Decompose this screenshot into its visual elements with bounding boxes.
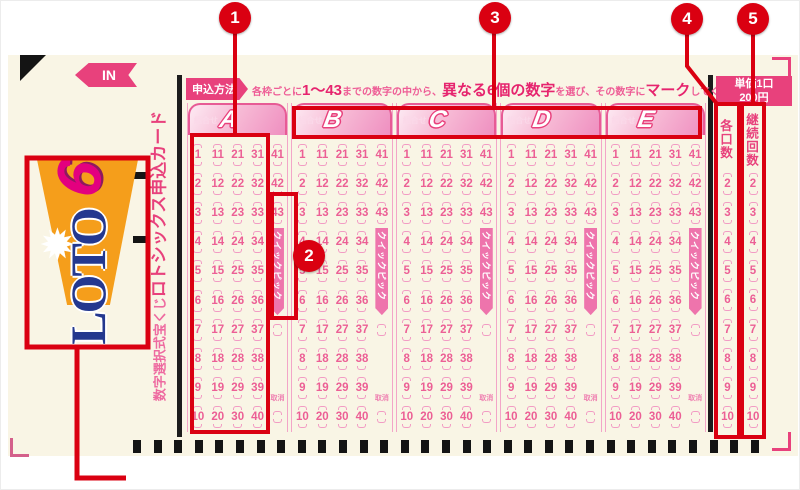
number-cell[interactable]: 6 bbox=[188, 286, 208, 315]
number-cell[interactable]: 37 bbox=[561, 315, 581, 344]
number-cell[interactable]: 18 bbox=[521, 344, 541, 373]
timing-mark bbox=[236, 440, 244, 453]
block-letter: D bbox=[531, 106, 553, 134]
number-cell[interactable]: 11 bbox=[626, 140, 646, 169]
number-cell[interactable]: 30 bbox=[541, 403, 561, 432]
instruction-segment: を選び、その数字に bbox=[555, 87, 645, 98]
number-cell[interactable]: 26 bbox=[228, 286, 248, 315]
number-cell[interactable]: 14 bbox=[521, 228, 541, 257]
number-cell[interactable]: 11 bbox=[417, 140, 437, 169]
number-column-last: 414243クイックピック取消 bbox=[476, 140, 496, 432]
number-cell[interactable]: 15 bbox=[626, 257, 646, 286]
number-cell[interactable]: 19 bbox=[626, 374, 646, 403]
loto6-application-card: IN ✹ 6 LOTO 数字選択式宝くじロトシックス申込カード 申込方法 各枠ご… bbox=[8, 55, 798, 456]
number-cell[interactable]: 34 bbox=[561, 228, 581, 257]
number-cell[interactable]: 37 bbox=[456, 315, 476, 344]
number-cell[interactable]: 40 bbox=[456, 403, 476, 432]
number-cell[interactable]: 2 bbox=[292, 169, 312, 198]
number-cell[interactable]: 3 bbox=[397, 198, 417, 227]
callout-circle-2: 2 bbox=[293, 240, 325, 272]
number-grid: 1234567891011121314151617181920212223242… bbox=[606, 140, 705, 432]
instruction-text: 各枠ごとに1〜43までの数字の中から、異なる6個の数字を選び、その数字にマークし… bbox=[252, 79, 760, 100]
quickpick-mark-cell[interactable] bbox=[685, 315, 705, 344]
number-cell[interactable]: 39 bbox=[248, 374, 268, 403]
number-cell[interactable]: 41 bbox=[685, 140, 705, 169]
number-cell[interactable]: 24 bbox=[437, 228, 457, 257]
number-cell[interactable]: 22 bbox=[437, 169, 457, 198]
number-cell[interactable]: 25 bbox=[332, 257, 352, 286]
cancel-mark-cell[interactable] bbox=[685, 403, 705, 432]
number-cell[interactable]: 5 bbox=[716, 257, 739, 286]
timing-mark bbox=[257, 440, 265, 453]
number-cell[interactable]: 27 bbox=[541, 315, 561, 344]
cancel-mark-cell[interactable] bbox=[581, 403, 601, 432]
number-cell[interactable]: 4 bbox=[397, 228, 417, 257]
number-grid: 1234567891011121314151617181920212223242… bbox=[188, 140, 287, 432]
number-cell[interactable]: 13 bbox=[208, 198, 228, 227]
number-cell[interactable]: 20 bbox=[417, 403, 437, 432]
number-cell[interactable]: 5 bbox=[606, 257, 626, 286]
number-cell[interactable]: 1 bbox=[188, 140, 208, 169]
number-cell[interactable]: 33 bbox=[665, 198, 685, 227]
number-cell[interactable]: 20 bbox=[521, 403, 541, 432]
number-cell[interactable]: 11 bbox=[312, 140, 332, 169]
number-cell[interactable]: 33 bbox=[352, 198, 372, 227]
number-cell[interactable]: 24 bbox=[645, 228, 665, 257]
number-cell[interactable]: 16 bbox=[626, 286, 646, 315]
quickpick-mark-cell[interactable] bbox=[476, 315, 496, 344]
timing-mark bbox=[668, 440, 676, 453]
number-cell[interactable]: 28 bbox=[645, 344, 665, 373]
number-cell[interactable]: 14 bbox=[417, 228, 437, 257]
quickpick-strip[interactable]: クイックピック bbox=[689, 228, 702, 316]
number-cell[interactable]: 6 bbox=[292, 286, 312, 315]
number-cell[interactable]: 8 bbox=[501, 344, 521, 373]
number-column: 12345678910 bbox=[397, 140, 417, 432]
number-cell[interactable]: 24 bbox=[228, 228, 248, 257]
number-cell[interactable]: 18 bbox=[626, 344, 646, 373]
units-header: 各口数 bbox=[716, 110, 735, 169]
number-cell[interactable]: 37 bbox=[665, 315, 685, 344]
cancel-mark-cell[interactable] bbox=[268, 403, 288, 432]
number-cell[interactable]: 25 bbox=[437, 257, 457, 286]
number-cell[interactable]: 13 bbox=[521, 198, 541, 227]
number-column: 12345678910 bbox=[501, 140, 521, 432]
number-cell[interactable]: 40 bbox=[561, 403, 581, 432]
number-cell[interactable]: 20 bbox=[208, 403, 228, 432]
number-cell[interactable]: 2 bbox=[742, 169, 764, 198]
number-cell[interactable]: 29 bbox=[437, 374, 457, 403]
combination-block-e: 組合せE123456789101112131415161718192021222… bbox=[605, 103, 706, 432]
number-cell[interactable]: 19 bbox=[417, 374, 437, 403]
number-cell[interactable]: 5 bbox=[397, 257, 417, 286]
number-cell[interactable]: 21 bbox=[437, 140, 457, 169]
number-cell[interactable]: 1 bbox=[501, 140, 521, 169]
number-cell[interactable]: 10 bbox=[501, 403, 521, 432]
timing-mark bbox=[751, 440, 759, 453]
number-cell[interactable]: 34 bbox=[248, 228, 268, 257]
number-cell[interactable]: 25 bbox=[228, 257, 248, 286]
number-cell[interactable]: 10 bbox=[292, 403, 312, 432]
number-cell[interactable]: 3 bbox=[188, 198, 208, 227]
quickpick-mark-cell[interactable] bbox=[581, 315, 601, 344]
number-cell[interactable]: 35 bbox=[561, 257, 581, 286]
number-cell[interactable]: 42 bbox=[581, 169, 601, 198]
number-cell[interactable]: 41 bbox=[268, 140, 288, 169]
number-cell[interactable]: 8 bbox=[397, 344, 417, 373]
number-cell[interactable]: 4 bbox=[188, 228, 208, 257]
loto6-logo: ✹ 6 LOTO bbox=[27, 158, 148, 347]
timing-mark bbox=[154, 440, 162, 453]
number-cell[interactable]: 17 bbox=[626, 315, 646, 344]
number-cell[interactable]: 8 bbox=[292, 344, 312, 373]
number-cell[interactable]: 24 bbox=[541, 228, 561, 257]
number-column: 12345678910 bbox=[292, 140, 312, 432]
right-black-bar bbox=[708, 75, 713, 432]
number-cell[interactable]: 10 bbox=[397, 403, 417, 432]
number-column: 21222324252627282930 bbox=[541, 140, 561, 432]
corner-mark-bottom-left bbox=[10, 438, 29, 457]
number-cell[interactable]: 35 bbox=[665, 257, 685, 286]
number-cell[interactable]: 22 bbox=[228, 169, 248, 198]
timing-mark bbox=[689, 440, 697, 453]
number-cell[interactable]: 32 bbox=[665, 169, 685, 198]
number-cell[interactable]: 43 bbox=[372, 198, 392, 227]
number-cell[interactable]: 42 bbox=[268, 169, 288, 198]
number-cell[interactable]: 43 bbox=[476, 198, 496, 227]
number-cell[interactable]: 31 bbox=[248, 140, 268, 169]
number-cell[interactable]: 25 bbox=[541, 257, 561, 286]
number-cell[interactable]: 28 bbox=[332, 344, 352, 373]
cancel-mark-cell[interactable] bbox=[476, 403, 496, 432]
number-cell[interactable]: 33 bbox=[248, 198, 268, 227]
number-cell[interactable]: 31 bbox=[665, 140, 685, 169]
number-cell[interactable]: 29 bbox=[541, 374, 561, 403]
number-cell[interactable]: 43 bbox=[268, 198, 288, 227]
number-cell[interactable]: 9 bbox=[188, 374, 208, 403]
number-cell[interactable]: 18 bbox=[417, 344, 437, 373]
number-cell[interactable]: 7 bbox=[188, 315, 208, 344]
number-cell[interactable]: 29 bbox=[228, 374, 248, 403]
number-cell[interactable]: 10 bbox=[716, 403, 739, 432]
number-cell[interactable]: 31 bbox=[561, 140, 581, 169]
number-cell[interactable]: 16 bbox=[521, 286, 541, 315]
number-cell[interactable]: 8 bbox=[742, 344, 764, 373]
number-cell[interactable]: 5 bbox=[742, 257, 764, 286]
number-cell[interactable]: 12 bbox=[417, 169, 437, 198]
callout-circle-4: 4 bbox=[671, 3, 703, 35]
number-cell[interactable]: 9 bbox=[716, 373, 739, 402]
number-cell[interactable]: 4 bbox=[606, 228, 626, 257]
number-cell[interactable]: 17 bbox=[521, 315, 541, 344]
number-cell[interactable]: 9 bbox=[397, 374, 417, 403]
number-cell[interactable]: 33 bbox=[456, 198, 476, 227]
block-header: 組合せA bbox=[188, 103, 287, 135]
block-header-label: 組合せ bbox=[612, 115, 636, 126]
number-cell[interactable]: 37 bbox=[352, 315, 372, 344]
number-cell[interactable]: 3 bbox=[606, 198, 626, 227]
number-cell[interactable]: 12 bbox=[521, 169, 541, 198]
block-letter: E bbox=[635, 106, 656, 134]
number-cell[interactable]: 23 bbox=[645, 198, 665, 227]
quickpick-strip[interactable]: クイックピック bbox=[584, 228, 597, 316]
number-cell[interactable]: 11 bbox=[521, 140, 541, 169]
number-cell[interactable]: 16 bbox=[208, 286, 228, 315]
number-cell[interactable]: 21 bbox=[332, 140, 352, 169]
number-cell[interactable]: 26 bbox=[437, 286, 457, 315]
number-cell[interactable]: 21 bbox=[645, 140, 665, 169]
number-cell[interactable]: 7 bbox=[716, 315, 739, 344]
number-cell[interactable]: 32 bbox=[561, 169, 581, 198]
number-cell[interactable]: 8 bbox=[188, 344, 208, 373]
number-cell[interactable]: 15 bbox=[521, 257, 541, 286]
number-cell[interactable]: 10 bbox=[742, 403, 764, 432]
number-cell[interactable]: 41 bbox=[372, 140, 392, 169]
instruction-segment: 1〜43 bbox=[302, 82, 342, 99]
number-cell[interactable]: 28 bbox=[541, 344, 561, 373]
corner-mark-bottom-right bbox=[772, 432, 791, 451]
number-cell[interactable]: 24 bbox=[332, 228, 352, 257]
quickpick-mark-cell[interactable] bbox=[268, 315, 288, 344]
number-cell[interactable]: 7 bbox=[501, 315, 521, 344]
number-cell[interactable]: 17 bbox=[417, 315, 437, 344]
number-cell[interactable]: 4 bbox=[742, 227, 764, 256]
number-cell[interactable]: 39 bbox=[665, 374, 685, 403]
instruction-segment: 異なる6個の数字 bbox=[442, 82, 555, 99]
number-cell[interactable]: 38 bbox=[248, 344, 268, 373]
number-cell[interactable]: 6 bbox=[606, 286, 626, 315]
number-cell[interactable]: 23 bbox=[541, 198, 561, 227]
number-cell[interactable]: 29 bbox=[645, 374, 665, 403]
number-cell[interactable]: 43 bbox=[685, 198, 705, 227]
number-column-last: 414243クイックピック取消 bbox=[581, 140, 601, 432]
number-cell[interactable]: 12 bbox=[626, 169, 646, 198]
number-cell[interactable]: 40 bbox=[352, 403, 372, 432]
number-cell[interactable]: 7 bbox=[397, 315, 417, 344]
number-cell[interactable]: 8 bbox=[606, 344, 626, 373]
timing-mark bbox=[339, 440, 347, 453]
number-cell[interactable]: 26 bbox=[332, 286, 352, 315]
number-cell[interactable]: 37 bbox=[248, 315, 268, 344]
number-cell[interactable]: 12 bbox=[312, 169, 332, 198]
number-cell[interactable]: 41 bbox=[581, 140, 601, 169]
number-cell[interactable]: 17 bbox=[312, 315, 332, 344]
number-cell[interactable]: 17 bbox=[208, 315, 228, 344]
timing-mark bbox=[627, 440, 635, 453]
number-cell[interactable]: 7 bbox=[742, 315, 764, 344]
timing-mark bbox=[298, 440, 306, 453]
number-cell[interactable]: 32 bbox=[456, 169, 476, 198]
number-cell[interactable]: 39 bbox=[456, 374, 476, 403]
number-cell[interactable]: 10 bbox=[606, 403, 626, 432]
number-cell[interactable]: 4 bbox=[501, 228, 521, 257]
number-cell[interactable]: 28 bbox=[437, 344, 457, 373]
number-cell[interactable]: 1 bbox=[292, 140, 312, 169]
number-cell[interactable]: 36 bbox=[665, 286, 685, 315]
number-cell[interactable]: 36 bbox=[248, 286, 268, 315]
number-cell[interactable]: 13 bbox=[312, 198, 332, 227]
number-cell[interactable]: 23 bbox=[332, 198, 352, 227]
cancel-mark-cell[interactable] bbox=[372, 403, 392, 432]
timing-mark bbox=[710, 440, 718, 453]
quickpick-strip[interactable]: クイックピック bbox=[375, 228, 388, 316]
number-cell[interactable]: 32 bbox=[248, 169, 268, 198]
number-cell[interactable]: 38 bbox=[352, 344, 372, 373]
number-cell[interactable]: 33 bbox=[561, 198, 581, 227]
block-header-label: 組合せ bbox=[507, 115, 531, 126]
number-cell[interactable]: 42 bbox=[685, 169, 705, 198]
number-cell[interactable]: 36 bbox=[561, 286, 581, 315]
block-header-label: 組合せ bbox=[403, 115, 427, 126]
number-cell[interactable]: 41 bbox=[476, 140, 496, 169]
quickpick-strip[interactable]: クイックピック bbox=[271, 228, 284, 316]
number-column: 31323334353637383940 bbox=[248, 140, 268, 432]
logo-text: LOTO bbox=[59, 209, 117, 345]
number-cell[interactable]: 30 bbox=[437, 403, 457, 432]
instruction-bar: 申込方法 各枠ごとに1〜43までの数字の中から、異なる6個の数字を選び、その数字… bbox=[186, 77, 708, 101]
number-cell[interactable]: 43 bbox=[581, 198, 601, 227]
quickpick-strip[interactable]: クイックピック bbox=[480, 228, 493, 316]
number-cell[interactable]: 22 bbox=[645, 169, 665, 198]
number-cell[interactable]: 5 bbox=[501, 257, 521, 286]
number-cell[interactable]: 27 bbox=[437, 315, 457, 344]
number-cell[interactable]: 27 bbox=[228, 315, 248, 344]
number-cell[interactable]: 23 bbox=[437, 198, 457, 227]
number-cell[interactable]: 15 bbox=[208, 257, 228, 286]
number-cell[interactable]: 5 bbox=[188, 257, 208, 286]
number-cell[interactable]: 23 bbox=[228, 198, 248, 227]
number-cell[interactable]: 6 bbox=[501, 286, 521, 315]
number-cell[interactable]: 10 bbox=[188, 403, 208, 432]
number-cell[interactable]: 38 bbox=[561, 344, 581, 373]
number-cell[interactable]: 1 bbox=[606, 140, 626, 169]
number-cell[interactable]: 6 bbox=[742, 286, 764, 315]
number-cell[interactable]: 34 bbox=[665, 228, 685, 257]
block-header-label: 組合せ bbox=[298, 115, 322, 126]
number-cell[interactable]: 34 bbox=[456, 228, 476, 257]
number-cell[interactable]: 9 bbox=[606, 374, 626, 403]
number-cell[interactable]: 2 bbox=[716, 169, 739, 198]
number-cell[interactable]: 20 bbox=[626, 403, 646, 432]
block-letter: A bbox=[218, 106, 240, 134]
number-cell[interactable]: 2 bbox=[397, 169, 417, 198]
number-cell[interactable]: 21 bbox=[228, 140, 248, 169]
number-cell[interactable]: 3 bbox=[292, 198, 312, 227]
card-side-title: 数字選択式宝くじロトシックス申込カード bbox=[134, 75, 180, 437]
number-cell[interactable]: 40 bbox=[248, 403, 268, 432]
number-cell[interactable]: 19 bbox=[312, 374, 332, 403]
number-column-last: 414243クイックピック取消 bbox=[372, 140, 392, 432]
number-cell[interactable]: 42 bbox=[372, 169, 392, 198]
number-cell[interactable]: 2 bbox=[188, 169, 208, 198]
number-cell[interactable]: 1 bbox=[397, 140, 417, 169]
timing-mark bbox=[318, 440, 326, 453]
number-cell[interactable]: 22 bbox=[541, 169, 561, 198]
block-header: 組合せB bbox=[292, 103, 391, 135]
number-cell[interactable]: 7 bbox=[292, 315, 312, 344]
combination-block-a: 組合せA123456789101112131415161718192021222… bbox=[187, 103, 288, 432]
number-cell[interactable]: 38 bbox=[665, 344, 685, 373]
page: IN ✹ 6 LOTO 数字選択式宝くじロトシックス申込カード 申込方法 各枠ご… bbox=[0, 0, 800, 490]
number-cell[interactable]: 26 bbox=[645, 286, 665, 315]
number-cell[interactable]: 3 bbox=[716, 198, 739, 227]
number-cell[interactable]: 13 bbox=[626, 198, 646, 227]
number-cell[interactable]: 28 bbox=[228, 344, 248, 373]
number-cell[interactable]: 13 bbox=[417, 198, 437, 227]
number-cell[interactable]: 6 bbox=[397, 286, 417, 315]
number-cell[interactable]: 3 bbox=[501, 198, 521, 227]
number-column: 21222324252627282930 bbox=[437, 140, 457, 432]
number-cell[interactable]: 38 bbox=[456, 344, 476, 373]
callout-circle-1: 1 bbox=[219, 2, 251, 34]
number-cell[interactable]: 26 bbox=[541, 286, 561, 315]
number-cell[interactable]: 21 bbox=[541, 140, 561, 169]
number-cell[interactable]: 2 bbox=[501, 169, 521, 198]
number-cell[interactable]: 14 bbox=[626, 228, 646, 257]
number-column: 21222324252627282930 bbox=[332, 140, 352, 432]
number-cell[interactable]: 25 bbox=[645, 257, 665, 286]
number-cell[interactable]: 19 bbox=[521, 374, 541, 403]
number-cell[interactable]: 39 bbox=[352, 374, 372, 403]
number-cell[interactable]: 36 bbox=[352, 286, 372, 315]
number-cell[interactable]: 9 bbox=[501, 374, 521, 403]
number-cell[interactable]: 2 bbox=[606, 169, 626, 198]
number-cell[interactable]: 31 bbox=[456, 140, 476, 169]
number-cell[interactable]: 39 bbox=[561, 374, 581, 403]
number-cell[interactable]: 35 bbox=[352, 257, 372, 286]
number-cell[interactable]: 30 bbox=[228, 403, 248, 432]
number-cell[interactable]: 9 bbox=[292, 374, 312, 403]
number-cell[interactable]: 4 bbox=[716, 227, 739, 256]
timing-mark bbox=[380, 440, 388, 453]
timing-mark bbox=[545, 440, 553, 453]
number-cell[interactable]: 22 bbox=[332, 169, 352, 198]
number-cell[interactable]: 15 bbox=[417, 257, 437, 286]
number-cell[interactable]: 12 bbox=[208, 169, 228, 198]
number-cell[interactable]: 3 bbox=[742, 198, 764, 227]
number-cell[interactable]: 32 bbox=[352, 169, 372, 198]
number-cell[interactable]: 11 bbox=[208, 140, 228, 169]
number-cell[interactable]: 27 bbox=[332, 315, 352, 344]
number-cell[interactable]: 20 bbox=[312, 403, 332, 432]
insert-direction-arrow-icon: IN bbox=[75, 63, 137, 87]
number-cell[interactable]: 36 bbox=[456, 286, 476, 315]
number-cell[interactable]: 18 bbox=[208, 344, 228, 373]
callout-circle-3: 3 bbox=[479, 2, 511, 34]
number-cell[interactable]: 40 bbox=[665, 403, 685, 432]
number-cell[interactable]: 34 bbox=[352, 228, 372, 257]
number-cell[interactable]: 8 bbox=[716, 344, 739, 373]
number-cell[interactable]: 19 bbox=[208, 374, 228, 403]
number-cell[interactable]: 35 bbox=[456, 257, 476, 286]
number-cell[interactable]: 7 bbox=[606, 315, 626, 344]
number-cell[interactable]: 18 bbox=[312, 344, 332, 373]
number-cell[interactable]: 16 bbox=[312, 286, 332, 315]
number-cell[interactable]: 14 bbox=[208, 228, 228, 257]
quickpick-mark-cell[interactable] bbox=[372, 315, 392, 344]
number-cell[interactable]: 35 bbox=[248, 257, 268, 286]
timing-mark bbox=[565, 440, 573, 453]
number-cell[interactable]: 30 bbox=[645, 403, 665, 432]
number-cell[interactable]: 30 bbox=[332, 403, 352, 432]
number-cell[interactable]: 29 bbox=[332, 374, 352, 403]
number-cell[interactable]: 9 bbox=[742, 373, 764, 402]
number-cell[interactable]: 6 bbox=[716, 286, 739, 315]
number-cell[interactable]: 42 bbox=[476, 169, 496, 198]
number-cell[interactable]: 16 bbox=[417, 286, 437, 315]
number-cell[interactable]: 27 bbox=[645, 315, 665, 344]
number-cell[interactable]: 31 bbox=[352, 140, 372, 169]
